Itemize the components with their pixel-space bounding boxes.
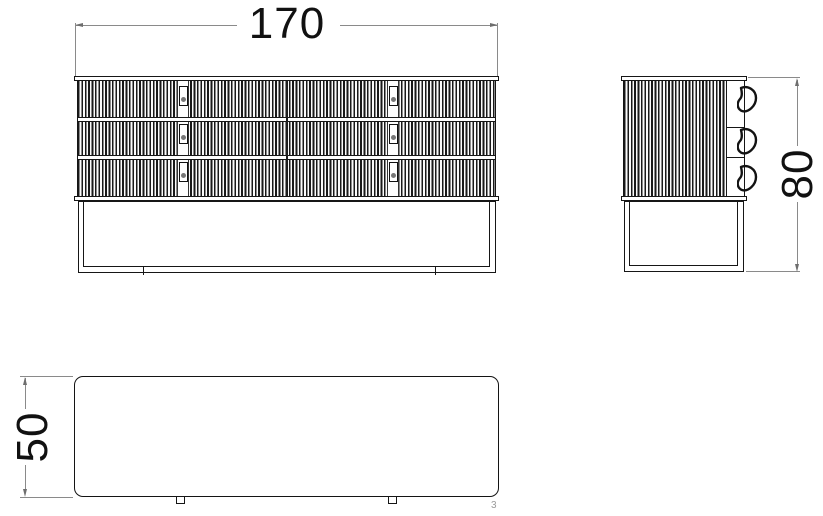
extension-line	[75, 23, 76, 76]
loop-handle-icon	[738, 166, 756, 190]
handle-tab	[176, 496, 185, 504]
base-frame	[624, 201, 744, 273]
cabinet-front-body	[77, 81, 496, 197]
frame-foot-mark	[435, 267, 436, 275]
drawer-pull	[389, 162, 398, 182]
drawer-pull	[389, 86, 398, 106]
arrowhead-left-icon	[75, 23, 83, 27]
extension-line	[748, 77, 800, 78]
center-seam	[286, 81, 288, 197]
drawer-pull	[179, 86, 188, 106]
drawer-loop-handles	[737, 83, 761, 197]
side-fluting	[624, 81, 727, 197]
extension-line	[20, 376, 73, 377]
drawer-pull	[389, 124, 398, 144]
arrowhead-down-icon	[23, 489, 27, 497]
pull-knob	[391, 135, 396, 140]
arrowhead-up-icon	[23, 377, 27, 385]
page-number: 3	[491, 500, 497, 511]
pull-knob	[181, 97, 186, 102]
base-frame-inner	[629, 200, 738, 266]
extension-line	[746, 271, 800, 272]
drawer-pull	[179, 124, 188, 144]
arrowhead-up-icon	[795, 78, 799, 86]
dimension-line	[25, 465, 26, 490]
arrowhead-down-icon	[795, 264, 799, 272]
front-width-dimension-label: 170	[239, 2, 335, 46]
base-frame	[78, 201, 496, 274]
pull-knob	[391, 97, 396, 102]
base-frame-inner	[83, 200, 490, 267]
dimension-line	[75, 25, 237, 26]
cabinet-side-body	[623, 81, 745, 197]
dimension-line	[797, 202, 798, 266]
dimension-line	[797, 80, 798, 146]
handle-tab	[388, 496, 397, 504]
top-depth-dimension-label: 50	[11, 389, 55, 485]
drawer-pull	[179, 162, 188, 182]
technical-drawing-canvas: 170	[0, 0, 823, 516]
loop-handle-icon	[738, 129, 756, 153]
extension-line	[497, 23, 498, 76]
dimension-line	[340, 25, 498, 26]
pull-knob	[181, 173, 186, 178]
frame-foot-mark	[143, 267, 144, 275]
pull-knob	[391, 173, 396, 178]
extension-line	[20, 497, 73, 498]
top-view-outline	[74, 376, 499, 497]
loop-handle-icon	[738, 87, 756, 111]
pull-knob	[181, 135, 186, 140]
